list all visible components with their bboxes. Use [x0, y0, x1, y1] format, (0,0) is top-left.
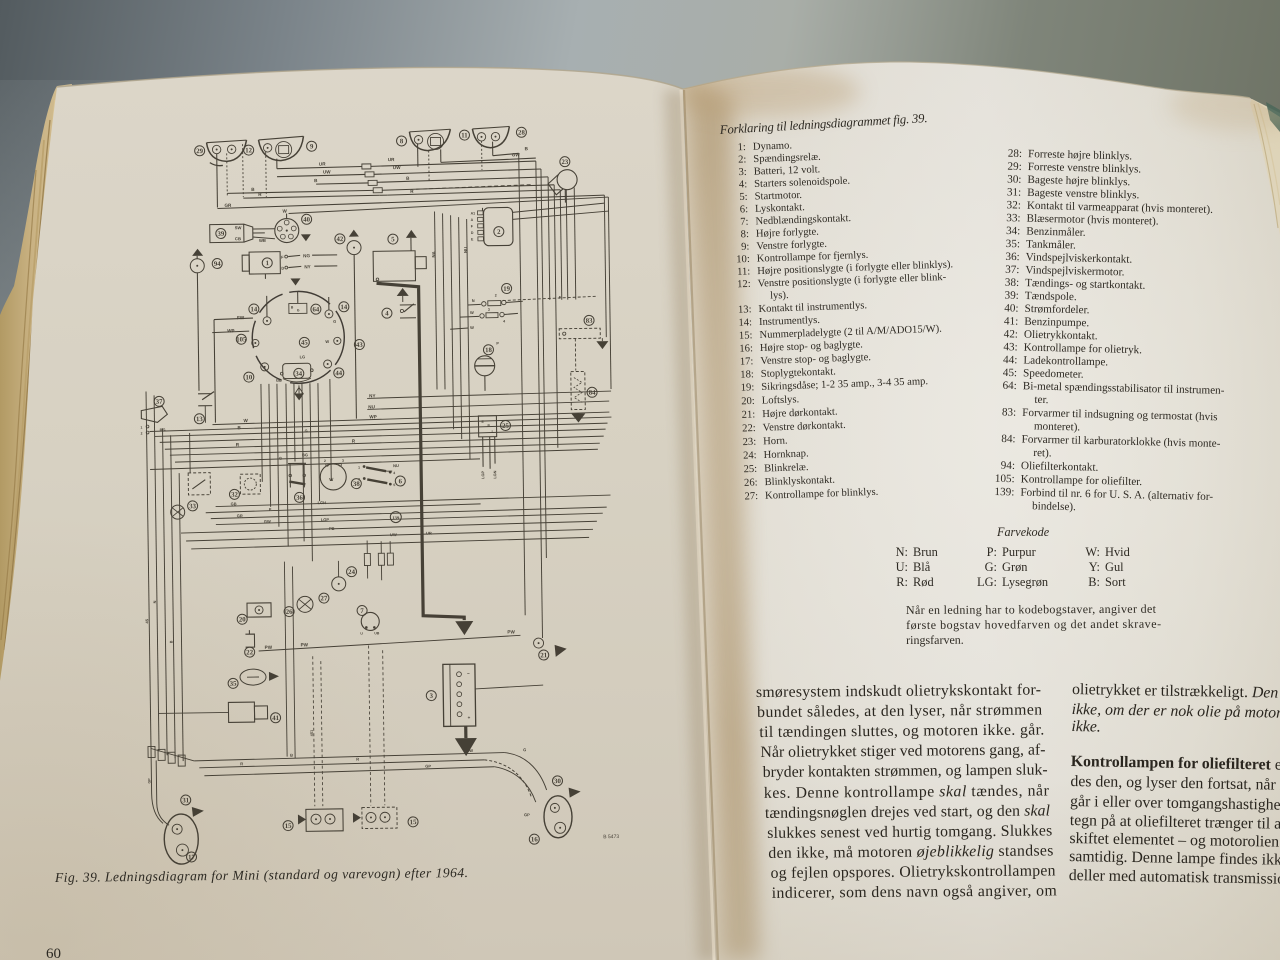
svg-text:UW: UW [393, 165, 401, 170]
svg-text:Bageste højre blinklys.: Bageste højre blinklys. [1027, 174, 1130, 188]
svg-text:R:: R: [896, 575, 908, 589]
svg-text:94:: 94: [1001, 460, 1016, 472]
svg-text:15:: 15: [739, 330, 753, 341]
svg-text:28: 28 [518, 130, 525, 137]
svg-text:34:: 34: [1006, 225, 1021, 237]
svg-text:SW: SW [235, 225, 242, 230]
svg-text:GW: GW [466, 748, 473, 753]
svg-text:ret).: ret). [1033, 447, 1052, 459]
svg-text:tændingsnøglen drejes ved star: tændingsnøglen drejes ved start, og den … [765, 802, 1051, 821]
svg-text:10:: 10: [736, 254, 750, 265]
svg-text:GB: GB [276, 378, 282, 383]
svg-text:bryder kontakten strømmen, og: bryder kontakten strømmen, og lampen slu… [763, 761, 1048, 780]
svg-text:3: 3 [342, 459, 344, 463]
svg-text:A1: A1 [471, 211, 476, 215]
svg-text:Rød: Rød [913, 575, 934, 589]
svg-text:U:: U: [896, 560, 908, 574]
svg-text:W:: W: [1085, 545, 1100, 559]
svg-text:Instrumentlys.: Instrumentlys. [759, 315, 820, 328]
svg-text:4:: 4: [739, 179, 748, 190]
svg-text:19:: 19: [741, 382, 755, 393]
svg-text:45:: 45: [1003, 367, 1018, 379]
svg-text:25:: 25: [743, 464, 757, 475]
svg-text:Speedometer.: Speedometer. [1023, 367, 1084, 380]
svg-text:44: 44 [335, 370, 342, 377]
svg-text:29: 29 [196, 148, 203, 155]
svg-text:Sort: Sort [1105, 575, 1126, 589]
svg-text:lys).: lys). [770, 290, 789, 302]
svg-text:64:: 64: [1002, 380, 1017, 392]
svg-text:UR: UR [388, 157, 395, 162]
svg-text:94: 94 [214, 261, 221, 268]
svg-text:2: 2 [324, 459, 326, 463]
svg-text:21:: 21: [742, 409, 756, 420]
svg-text:G: G [305, 428, 308, 433]
svg-text:bindelse).: bindelse). [1032, 500, 1076, 513]
svg-text:139: 139 [392, 515, 400, 520]
svg-text:BG: BG [302, 452, 308, 457]
svg-text:60: 60 [46, 946, 61, 960]
svg-text:N: N [153, 600, 157, 603]
svg-text:139:: 139: [994, 486, 1014, 498]
svg-text:WP: WP [369, 414, 376, 419]
svg-text:28:: 28: [1008, 148, 1023, 160]
svg-text:37:: 37: [1005, 264, 1020, 276]
svg-text:G:: G: [985, 560, 997, 574]
svg-text:41:: 41: [1004, 315, 1019, 327]
svg-text:Højre forlygte.: Højre forlygte. [756, 227, 819, 240]
svg-text:Loftslys.: Loftslys. [762, 394, 800, 406]
svg-text:Purpur: Purpur [1002, 545, 1037, 559]
svg-text:11: 11 [461, 132, 468, 139]
svg-text:UR: UR [319, 162, 326, 167]
svg-text:G: G [333, 319, 336, 324]
svg-text:UW: UW [323, 169, 331, 174]
svg-text:LGP: LGP [481, 471, 485, 479]
svg-text:B:: B: [1088, 575, 1100, 589]
svg-text:GP: GP [425, 764, 431, 769]
svg-text:32: 32 [231, 492, 238, 499]
svg-text:12: 12 [245, 147, 252, 154]
svg-text:24:: 24: [743, 450, 757, 461]
svg-text:Lysegrøn: Lysegrøn [1002, 575, 1048, 589]
svg-text:37: 37 [156, 399, 163, 406]
svg-text:32:: 32: [1006, 199, 1021, 211]
svg-text:13:: 13: [738, 304, 752, 315]
svg-text:2: 2 [495, 294, 497, 298]
svg-text:21: 21 [540, 652, 547, 659]
svg-text:D: D [471, 231, 474, 235]
svg-text:CB: CB [235, 236, 241, 241]
svg-text:4: 4 [503, 320, 505, 324]
svg-text:G: G [279, 456, 282, 461]
svg-text:den ikke, må motoren øjeblikke: den ikke, må motoren øjeblikkelig stands… [768, 842, 1053, 861]
svg-text:GP: GP [147, 778, 151, 784]
svg-text:FW: FW [237, 315, 245, 320]
svg-text:N: N [472, 298, 475, 303]
svg-text:84:: 84: [1001, 433, 1016, 445]
svg-text:15: 15 [285, 823, 292, 830]
svg-text:Farvekode: Farvekode [996, 525, 1050, 539]
svg-text:Vindspejlviskerkontakt.: Vindspejlviskerkontakt. [1026, 251, 1133, 265]
svg-text:Ladekontrollampe.: Ladekontrollampe. [1023, 354, 1108, 368]
svg-text:29:: 29: [1007, 161, 1022, 173]
svg-text:Gul: Gul [1105, 560, 1124, 574]
svg-text:indicerer, som dens navn også: indicerer, som dens navn også angiver, o… [772, 882, 1058, 901]
svg-text:til tændingen sluttes, og moto: til tændingen sluttes, og motoren ikke. … [759, 721, 1044, 740]
svg-text:40: 40 [303, 217, 310, 224]
svg-text:GP: GP [524, 812, 530, 817]
svg-text:4S1: 4S1 [310, 730, 314, 736]
svg-text:20: 20 [239, 616, 246, 623]
svg-text:20:: 20: [741, 396, 755, 407]
svg-text:41: 41 [272, 715, 279, 722]
svg-text:Grøn: Grøn [1002, 560, 1027, 574]
svg-text:6:: 6: [740, 204, 749, 215]
svg-text:WP: WP [227, 328, 234, 333]
svg-text:38: 38 [353, 481, 360, 488]
svg-text:Hvid: Hvid [1105, 545, 1131, 559]
svg-text:Startmotor.: Startmotor. [754, 190, 802, 203]
svg-text:Strømfordeler.: Strømfordeler. [1024, 303, 1089, 316]
svg-text:24: 24 [348, 569, 355, 576]
svg-text:UW: UW [390, 532, 397, 537]
svg-text:UB: UB [374, 631, 380, 635]
svg-text:30: 30 [554, 778, 561, 785]
svg-text:17: 17 [188, 854, 195, 861]
svg-text:NU: NU [393, 463, 399, 468]
svg-text:NU: NU [368, 404, 375, 409]
svg-text:Brun: Brun [913, 545, 938, 559]
svg-text:Når en ledning har to kodebogs: Når en ledning har to kodebogstaver, ang… [906, 602, 1157, 617]
svg-text:GW: GW [264, 519, 271, 524]
svg-text:P:: P: [987, 545, 997, 559]
svg-text:5: 5 [393, 483, 395, 487]
svg-text:Benzinmåler.: Benzinmåler. [1026, 226, 1086, 239]
svg-text:Forreste højre blinklys.: Forreste højre blinklys. [1028, 148, 1133, 162]
svg-text:27: 27 [320, 595, 327, 602]
svg-text:LGN: LGN [493, 470, 497, 478]
svg-text:105:: 105: [995, 473, 1015, 485]
svg-text:NG: NG [303, 253, 310, 258]
svg-text:R: R [240, 761, 243, 766]
svg-text:A: A [471, 218, 474, 222]
svg-text:36:: 36: [1005, 251, 1020, 263]
svg-text:og fejlen opspores. Olietryksk: og fejlen opspores. Olietrykskontrollamp… [770, 862, 1055, 881]
svg-text:12:: 12: [737, 279, 751, 290]
svg-text:Blinkrelæ.: Blinkrelæ. [764, 462, 809, 475]
svg-text:NY: NY [369, 393, 375, 398]
svg-text:13: 13 [196, 416, 203, 423]
svg-text:27:: 27: [744, 491, 758, 502]
svg-text:R: R [356, 757, 359, 762]
svg-text:42:: 42: [1004, 328, 1019, 340]
svg-text:3: 3 [488, 308, 490, 312]
svg-text:kes. Denne kontrollampe skal t: kes. Denne kontrollampe skal tændes, når [764, 782, 1050, 801]
svg-text:bundet således, at den lyser,: bundet således, at den lyser, når strømm… [757, 702, 1042, 721]
svg-text:PB: PB [329, 526, 335, 531]
svg-text:LG: LG [300, 354, 306, 359]
svg-text:GB: GB [231, 501, 237, 506]
svg-text:ter.: ter. [1034, 394, 1048, 406]
svg-text:42: 42 [336, 236, 343, 243]
svg-text:35:: 35: [1006, 238, 1021, 250]
svg-text:18:: 18: [740, 369, 754, 380]
svg-text:Vindspejlviskermotor.: Vindspejlviskermotor. [1025, 264, 1125, 278]
svg-text:14: 14 [340, 304, 347, 311]
svg-text:NY: NY [304, 264, 310, 269]
svg-text:39: 39 [217, 231, 224, 238]
svg-text:17:: 17: [740, 356, 754, 367]
svg-text:G: G [297, 308, 300, 312]
svg-text:W: W [470, 325, 474, 330]
svg-text:Horn.: Horn. [763, 436, 788, 448]
svg-text:26: 26 [286, 609, 293, 616]
svg-text:5:: 5: [739, 192, 748, 203]
svg-text:10: 10 [245, 374, 252, 381]
svg-text:4S: 4S [145, 618, 149, 623]
svg-text:2:: 2: [738, 154, 747, 165]
svg-text:1: 1 [140, 426, 142, 430]
svg-text:LGH: LGH [318, 500, 327, 505]
svg-text:GR: GR [237, 513, 243, 518]
svg-text:GR: GR [224, 203, 232, 208]
svg-text:44:: 44: [1003, 354, 1018, 366]
svg-text:Oliefilterkontakt.: Oliefilterkontakt. [1021, 460, 1099, 474]
svg-text:26:: 26: [744, 477, 758, 488]
svg-text:1:: 1: [737, 142, 746, 153]
svg-text:19: 19 [503, 286, 510, 293]
svg-text:D: D [281, 266, 284, 271]
svg-text:11:: 11: [737, 266, 751, 277]
svg-text:B: B [169, 640, 173, 643]
svg-text:31:: 31: [1007, 186, 1022, 198]
svg-text:16: 16 [531, 836, 538, 843]
svg-text:W: W [325, 339, 329, 344]
svg-text:33: 33 [189, 503, 196, 510]
svg-text:N:: N: [896, 545, 908, 559]
svg-text:64: 64 [312, 306, 319, 313]
svg-text:smøresystem indskudt olietryks: smøresystem indskudt olietrykskontakt fo… [756, 682, 1041, 701]
svg-text:Spændingsrelæ.: Spændingsrelæ. [753, 152, 821, 165]
svg-text:8:: 8: [741, 229, 750, 240]
svg-text:22:: 22: [742, 423, 756, 434]
svg-text:23: 23 [561, 159, 568, 166]
svg-text:39:: 39: [1004, 290, 1019, 302]
svg-text:83: 83 [586, 318, 593, 325]
svg-text:43:: 43: [1003, 341, 1018, 353]
svg-text:ringsfarven.: ringsfarven. [906, 633, 964, 647]
svg-text:Y:: Y: [1089, 560, 1100, 574]
svg-text:105: 105 [236, 336, 247, 343]
svg-text:P: P [269, 507, 272, 512]
svg-text:35: 35 [230, 681, 237, 688]
svg-text:30:: 30: [1007, 173, 1022, 185]
svg-text:2: 2 [141, 432, 143, 436]
svg-text:monteret).: monteret). [1034, 420, 1081, 433]
svg-text:Lyskontakt.: Lyskontakt. [755, 202, 805, 215]
svg-text:33:: 33: [1006, 212, 1021, 224]
svg-text:7: 7 [358, 478, 360, 482]
svg-text:22: 22 [246, 649, 253, 656]
svg-text:14:: 14: [738, 317, 752, 328]
svg-text:Olietrykkontakt.: Olietrykkontakt. [1024, 329, 1098, 343]
svg-text:14: 14 [250, 306, 257, 313]
svg-text:83:: 83: [1002, 406, 1017, 418]
svg-text:B: B [290, 753, 293, 758]
svg-text:Hornknap.: Hornknap. [763, 448, 808, 461]
svg-text:34: 34 [295, 371, 302, 378]
svg-text:Batteri, 12 volt.: Batteri, 12 volt. [754, 164, 821, 177]
svg-text:PW: PW [265, 645, 273, 650]
svg-text:slukkes senest ved hurtig tomg: slukkes senest ved hurtig tomgang. Slukk… [767, 822, 1052, 841]
svg-text:31: 31 [182, 797, 189, 804]
svg-text:40:: 40: [1004, 302, 1019, 314]
svg-text:38:: 38: [1005, 277, 1020, 289]
svg-text:W: W [282, 209, 287, 214]
svg-text:4: 4 [393, 471, 395, 475]
svg-text:16:: 16: [739, 343, 753, 354]
svg-text:B 5473: B 5473 [603, 834, 619, 840]
svg-text:7:: 7: [740, 217, 749, 228]
svg-text:36: 36 [296, 495, 303, 502]
svg-text:3:: 3: [738, 167, 747, 178]
svg-text:Benzinpumpe.: Benzinpumpe. [1024, 316, 1089, 329]
svg-text:15: 15 [410, 819, 417, 826]
svg-text:45: 45 [301, 340, 308, 347]
svg-text:43: 43 [356, 342, 363, 349]
svg-text:LG:: LG: [977, 575, 997, 589]
svg-text:+: + [468, 715, 471, 720]
svg-text:Tændspole.: Tændspole. [1025, 290, 1077, 303]
svg-text:WB: WB [259, 238, 266, 243]
svg-text:første bogstav hovedfarven og: første bogstav hovedfarven og det andet … [906, 617, 1161, 632]
svg-text:PW: PW [301, 642, 309, 647]
svg-text:84: 84 [589, 390, 596, 397]
svg-text:23:: 23: [742, 437, 756, 448]
svg-text:18: 18 [485, 347, 492, 354]
svg-text:Når olietrykket stiger ved mot: Når olietrykket stiger ved motorens gang… [760, 741, 1045, 760]
svg-text:1: 1 [358, 466, 360, 470]
svg-text:LGP: LGP [321, 517, 330, 522]
svg-text:Tankmåler.: Tankmåler. [1026, 238, 1076, 251]
svg-text:W: W [470, 310, 474, 315]
svg-text:ikke.: ikke. [1071, 718, 1101, 736]
svg-text:G: G [523, 747, 526, 752]
svg-text:Dynamo.: Dynamo. [753, 140, 793, 152]
svg-text:PW: PW [507, 629, 515, 634]
svg-text:W: W [243, 418, 248, 423]
svg-text:UR: UR [426, 531, 432, 536]
svg-text:Blå: Blå [913, 560, 931, 574]
svg-text:−: − [467, 671, 470, 676]
svg-text:9:: 9: [741, 242, 750, 253]
